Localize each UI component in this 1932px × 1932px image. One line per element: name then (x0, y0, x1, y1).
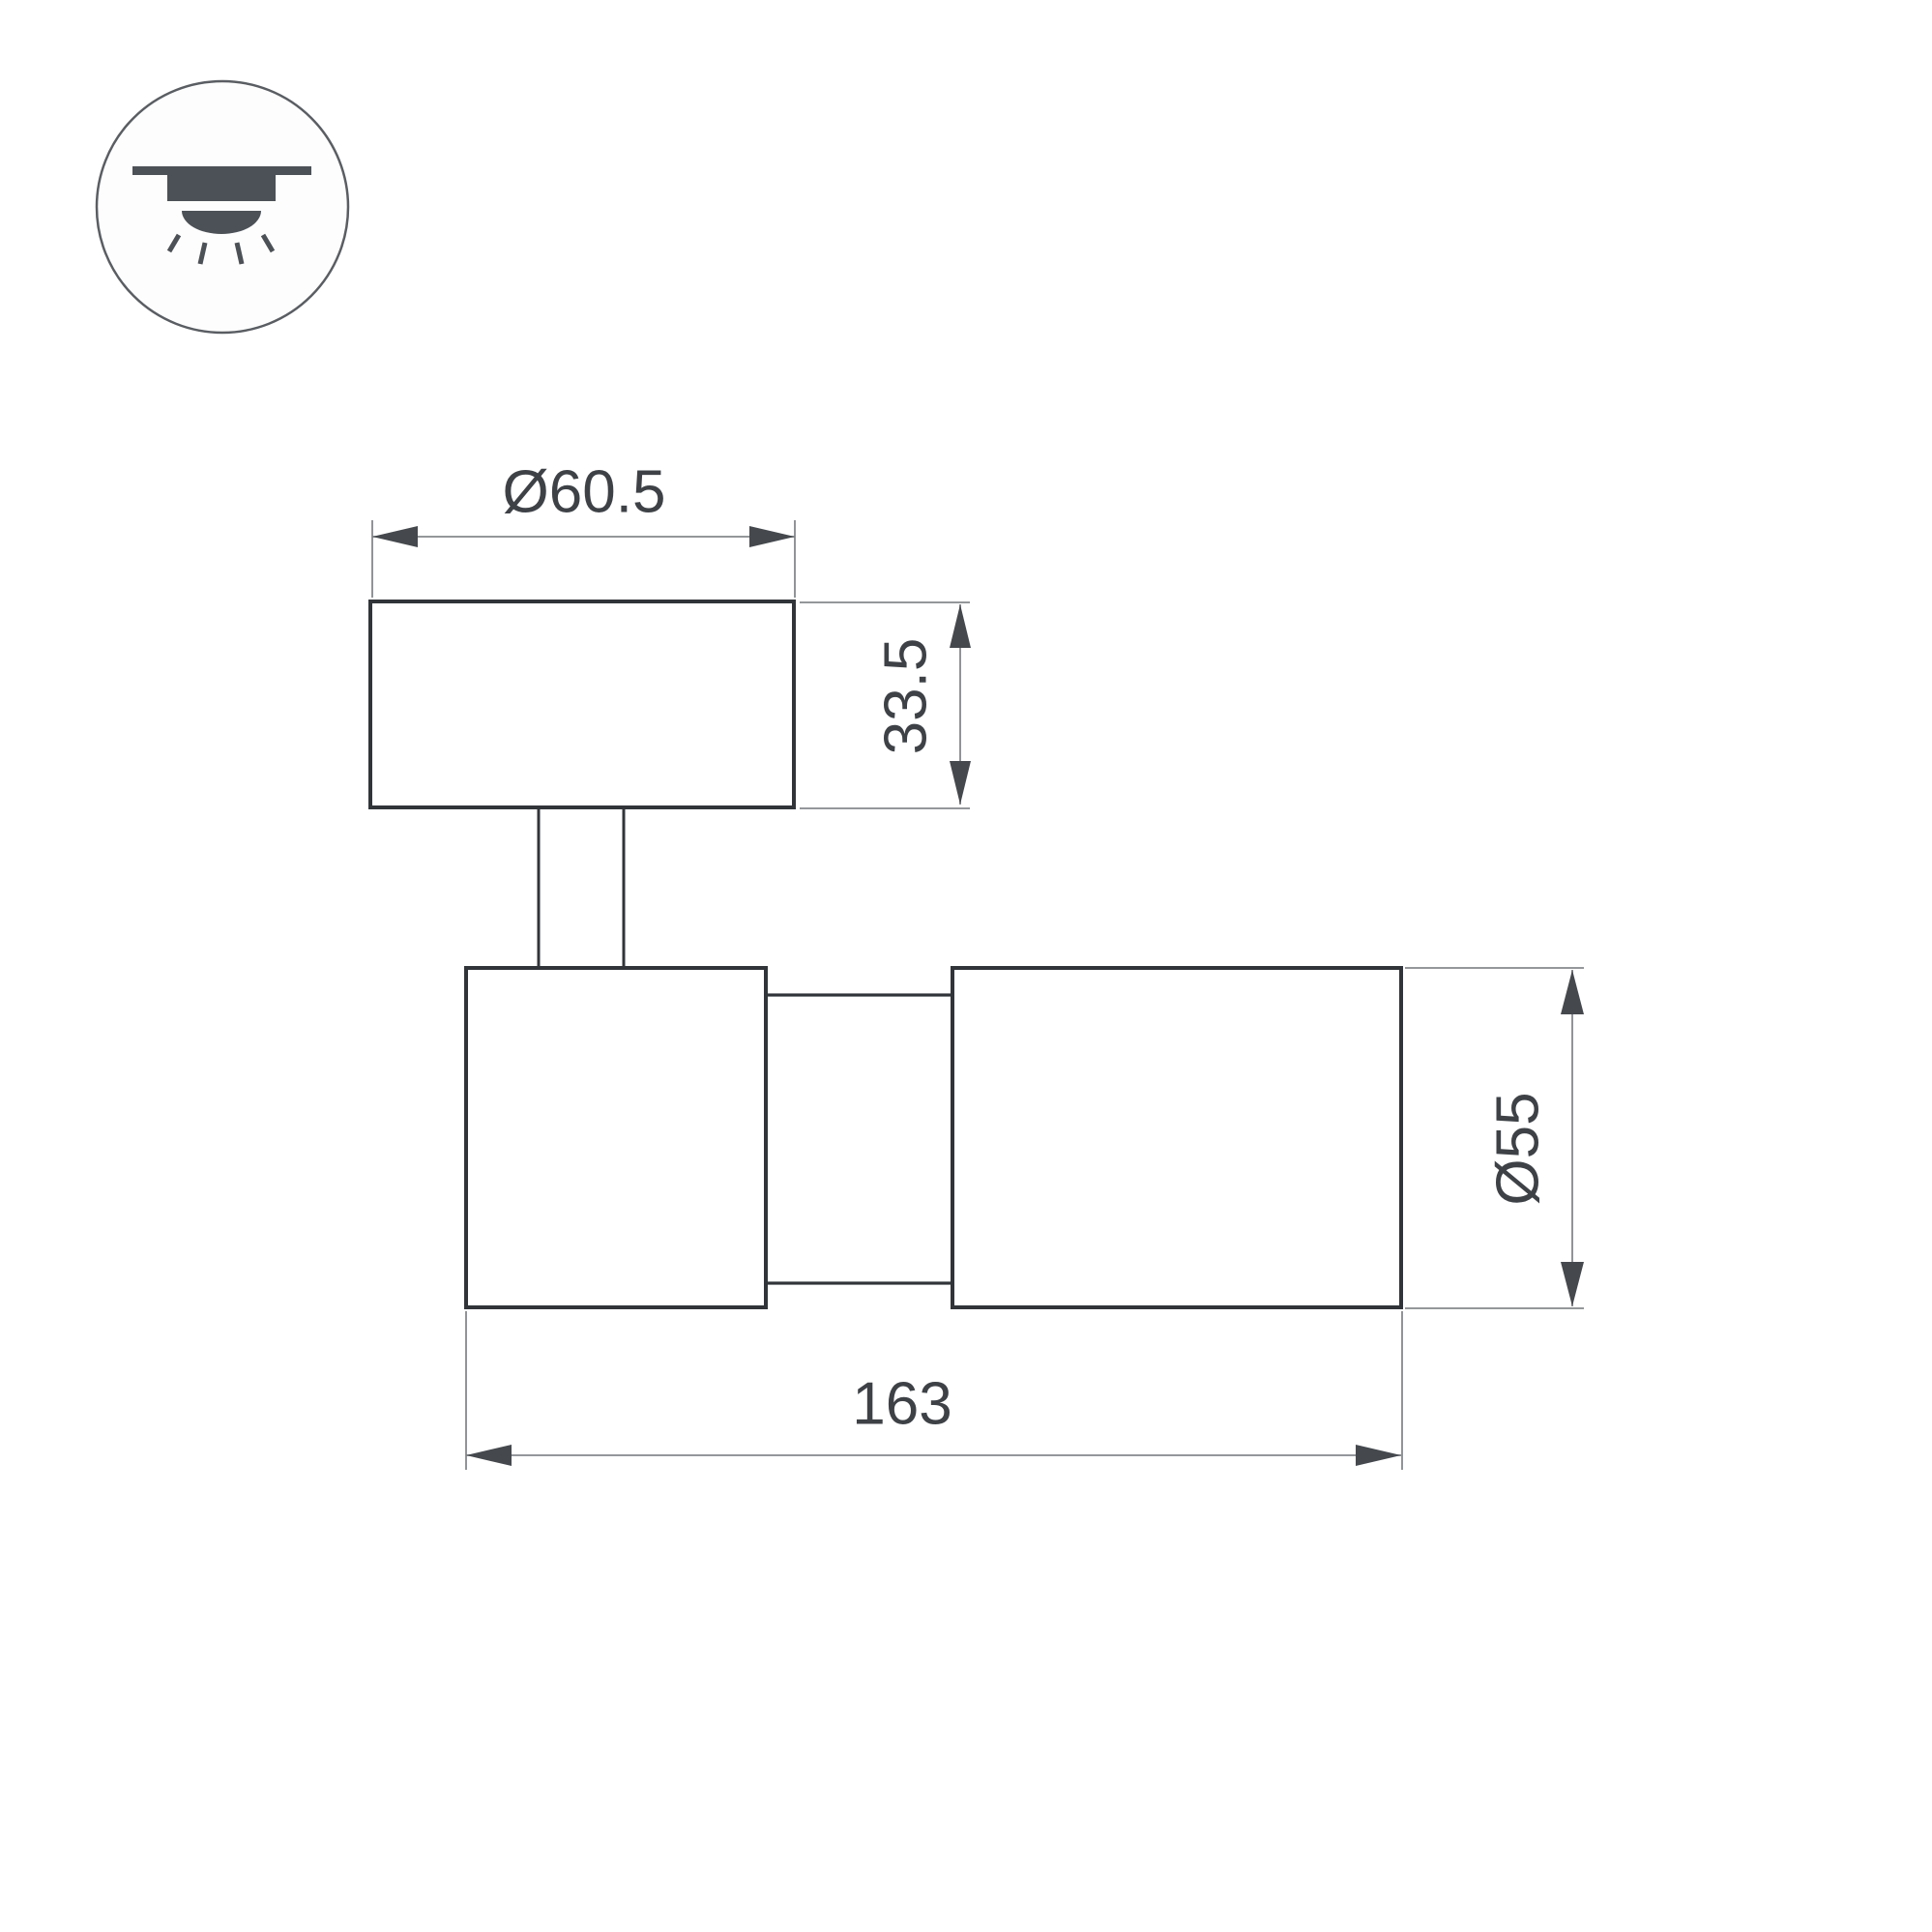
dimension-label-head-diameter: Ø60.5 (503, 459, 666, 526)
dimension-head-diameter: Ø60.5 (372, 459, 795, 599)
ceiling-line (132, 166, 311, 175)
drawing-page: Ø60.5 33.5 Ø55 163 (0, 0, 1932, 1932)
arrowhead-up (1561, 970, 1584, 1014)
arrowhead-right (1356, 1445, 1401, 1466)
body-neck-section (766, 995, 952, 1283)
dimension-body-length: 163 (466, 1311, 1402, 1470)
mount-type-icon (97, 81, 348, 333)
fixture-housing (167, 175, 276, 201)
arrowhead-left (466, 1445, 512, 1466)
dimension-base-height: 33.5 (800, 602, 971, 808)
icon-circle (97, 81, 348, 333)
arrowhead-up (950, 604, 971, 648)
body-left-section (466, 968, 766, 1307)
dimension-label-body-length: 163 (852, 1371, 951, 1438)
arrowhead-left (372, 526, 418, 547)
arrowhead-down (950, 761, 971, 805)
arrowhead-down (1561, 1262, 1584, 1306)
body-right-section (952, 968, 1401, 1307)
dimension-body-diameter: Ø55 (1405, 968, 1584, 1308)
dimension-label-body-diameter: Ø55 (1485, 1092, 1552, 1205)
arrowhead-right (749, 526, 795, 547)
technical-drawing: Ø60.5 33.5 Ø55 163 (0, 0, 1932, 1932)
dimension-label-base-height: 33.5 (873, 638, 940, 755)
mount-base-outline (370, 601, 794, 807)
